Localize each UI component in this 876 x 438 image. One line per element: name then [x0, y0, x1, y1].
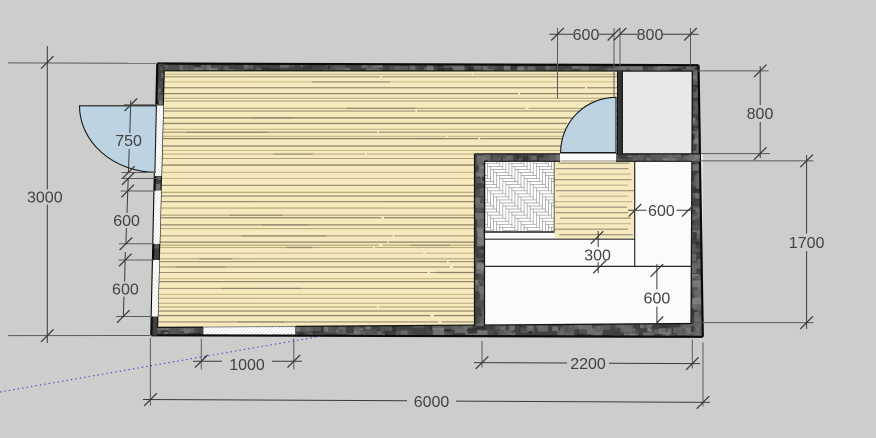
svg-text:600: 600 [573, 27, 600, 44]
svg-text:600: 600 [112, 282, 139, 299]
svg-text:6000: 6000 [414, 394, 450, 411]
svg-text:2200: 2200 [570, 356, 606, 373]
svg-text:800: 800 [637, 27, 664, 44]
svg-text:1700: 1700 [789, 235, 825, 252]
svg-text:750: 750 [115, 133, 142, 150]
svg-text:1000: 1000 [229, 357, 265, 374]
svg-text:800: 800 [747, 106, 774, 123]
svg-text:300: 300 [584, 247, 611, 264]
svg-text:600: 600 [644, 290, 671, 307]
svg-text:600: 600 [648, 203, 675, 220]
svg-text:3000: 3000 [27, 190, 63, 207]
svg-text:600: 600 [113, 213, 140, 230]
